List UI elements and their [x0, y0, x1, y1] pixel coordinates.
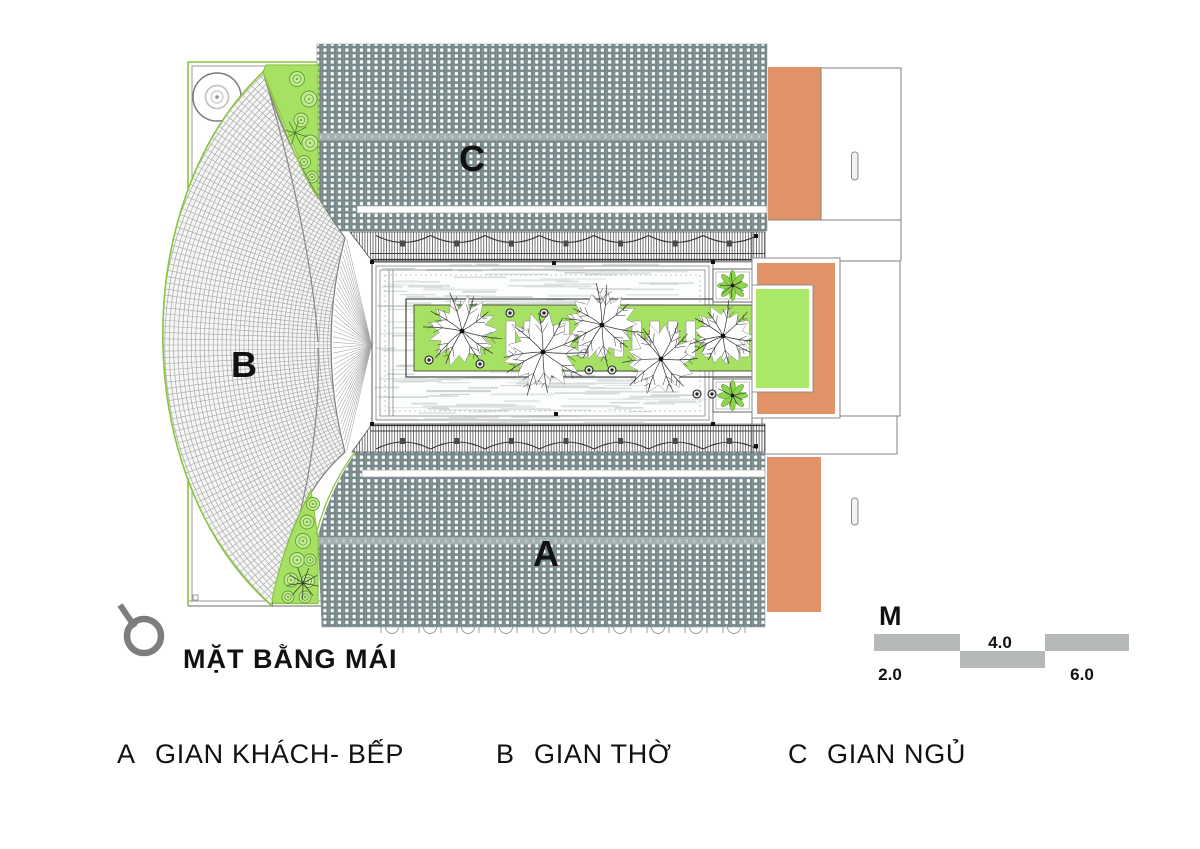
svg-text:6.0: 6.0: [1070, 665, 1094, 684]
svg-text:C: C: [788, 739, 808, 769]
svg-text:C: C: [459, 138, 485, 179]
svg-text:GIAN THỜ: GIAN THỜ: [534, 738, 672, 769]
svg-text:M: M: [879, 601, 902, 631]
svg-text:GIAN KHÁCH- BẾP: GIAN KHÁCH- BẾP: [155, 738, 404, 769]
svg-text:MẶT BẰNG MÁI: MẶT BẰNG MÁI: [183, 643, 397, 674]
svg-text:GIAN NGỦ: GIAN NGỦ: [827, 737, 966, 769]
svg-text:A: A: [533, 533, 559, 574]
svg-text:B: B: [231, 344, 257, 385]
svg-text:B: B: [496, 739, 514, 769]
svg-text:4.0: 4.0: [988, 633, 1012, 652]
svg-text:2.0: 2.0: [878, 665, 902, 684]
svg-text:A: A: [117, 739, 135, 769]
